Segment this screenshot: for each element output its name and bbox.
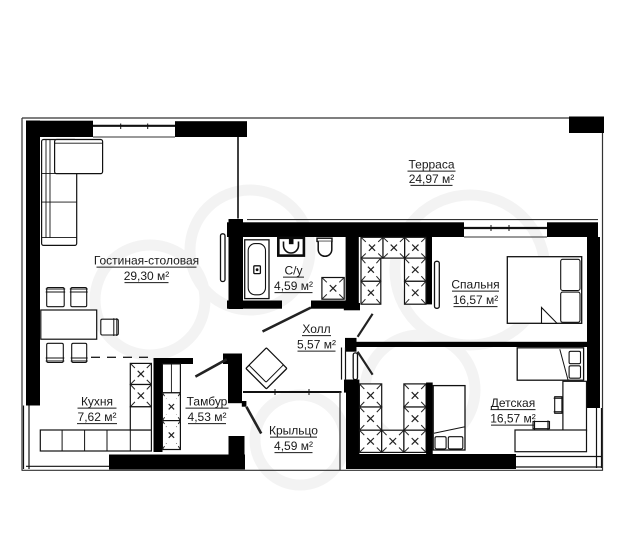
svg-text:16,57 м²: 16,57 м² bbox=[490, 412, 536, 426]
svg-text:4,53 м²: 4,53 м² bbox=[188, 410, 227, 424]
svg-text:Терраса: Терраса bbox=[408, 158, 454, 172]
svg-text:Холл: Холл bbox=[302, 322, 330, 336]
svg-text:Спальня: Спальня bbox=[451, 278, 499, 292]
svg-text:7,62 м²: 7,62 м² bbox=[78, 410, 117, 424]
svg-text:Детская: Детская bbox=[491, 396, 535, 410]
svg-text:Тамбур: Тамбур bbox=[187, 395, 228, 409]
svg-text:С/у: С/у bbox=[285, 264, 303, 278]
svg-text:16,57 м²: 16,57 м² bbox=[453, 293, 499, 307]
svg-text:4,59 м²: 4,59 м² bbox=[274, 439, 313, 453]
svg-text:Кухня: Кухня bbox=[81, 395, 113, 409]
svg-text:29,30 м²: 29,30 м² bbox=[124, 269, 170, 283]
svg-text:5,57 м²: 5,57 м² bbox=[297, 338, 336, 352]
svg-text:Гостиная-столовая: Гостиная-столовая bbox=[94, 254, 199, 268]
svg-text:24,97 м²: 24,97 м² bbox=[409, 172, 455, 186]
svg-text:4,59 м²: 4,59 м² bbox=[274, 279, 313, 293]
svg-text:Крыльцо: Крыльцо bbox=[269, 424, 318, 438]
